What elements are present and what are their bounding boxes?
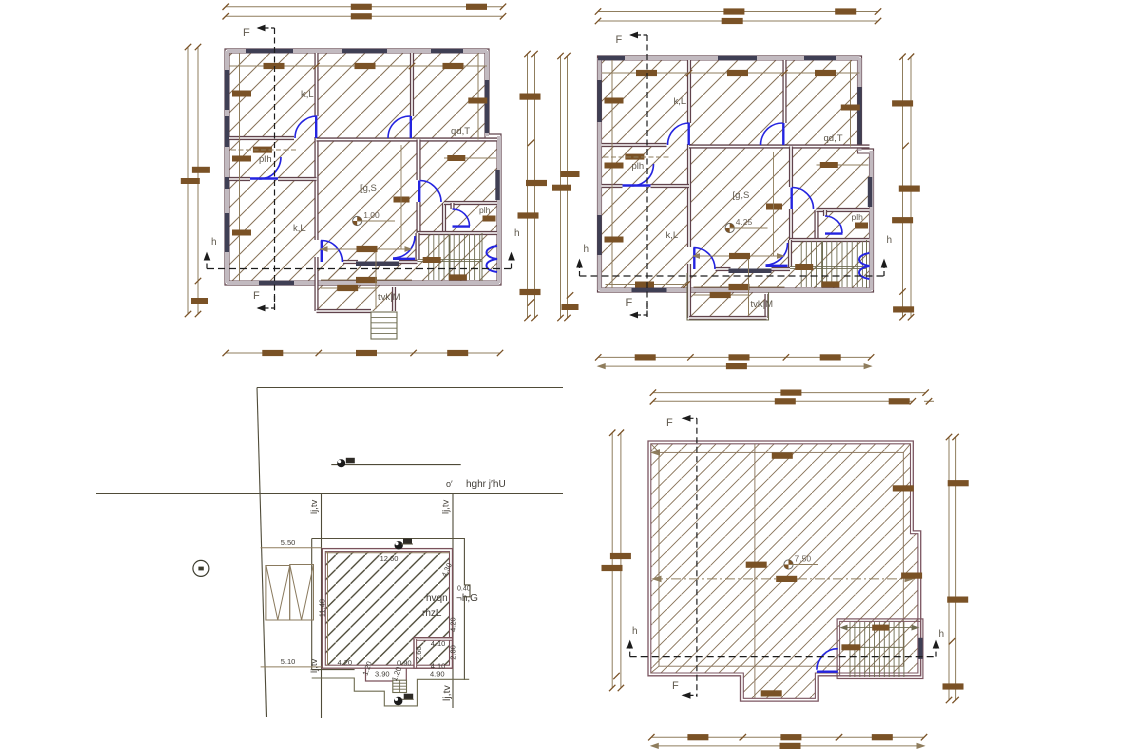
svg-text:4.20: 4.20 [338,658,353,667]
svg-text:F: F [672,680,679,692]
svg-text:h: h [632,626,638,637]
svg-text:qd,T: qd,T [824,133,843,144]
svg-text:¬h,G: ¬h,G [456,593,478,604]
svg-text:7.50: 7.50 [795,554,812,564]
svg-text:o′: o′ [446,479,453,489]
svg-text:F: F [253,290,260,302]
svg-text:[g,S: [g,S [733,190,750,201]
svg-text:tvk|M: tvk|M [378,292,401,303]
svg-text:h: h [887,235,893,246]
svg-text:11.40: 11.40 [318,599,327,617]
svg-text:h: h [584,244,590,255]
svg-text:lj,tv: lj,tv [441,500,452,515]
svg-text:4.25: 4.25 [736,217,753,227]
svg-text:5.10: 5.10 [281,657,296,666]
svg-text:lj,tv: lj,tv [309,659,320,674]
svg-text:tvk|M: tvk|M [751,299,774,310]
svg-text:hghr j′hU: hghr j′hU [466,479,506,490]
svg-text:F: F [626,297,633,309]
svg-text:F: F [616,34,623,46]
svg-text:lj,tv: lj,tv [309,500,320,515]
svg-text:k,L: k,L [666,230,679,241]
svg-text:h: h [939,629,945,640]
svg-text:2.60: 2.60 [414,646,423,661]
svg-text:0.90: 0.90 [397,658,412,667]
svg-text:F: F [243,27,250,39]
svg-text:qd,T: qd,T [451,126,470,137]
svg-text:h: h [514,228,520,239]
svg-text:k,L: k,L [674,96,687,107]
svg-text:5.50: 5.50 [281,538,296,547]
svg-text:4.90: 4.90 [430,670,445,679]
svg-text:3.90: 3.90 [375,670,390,679]
svg-text:hvqn: hvqn [426,593,448,604]
svg-text:k,L: k,L [293,223,306,234]
svg-text:plh: plh [852,212,864,222]
svg-text:4.10: 4.10 [431,639,446,648]
svg-text:k,L: k,L [301,89,314,100]
svg-text:lj,tv: lj,tv [441,685,453,702]
svg-text:plh: plh [259,154,272,165]
svg-text:h: h [211,237,217,248]
svg-text:plh: plh [632,161,645,172]
svg-text:4.20: 4.20 [449,617,458,632]
svg-text:F: F [666,417,673,429]
svg-text:plh: plh [479,205,491,215]
svg-text:0.40: 0.40 [457,586,471,593]
svg-text:12.60: 12.60 [380,554,399,563]
svg-text:1.00: 1.00 [363,210,380,220]
svg-text:2.80: 2.80 [449,645,458,660]
svg-text:rhzL: rhzL [422,608,442,619]
svg-text:[g,S: [g,S [360,183,377,194]
